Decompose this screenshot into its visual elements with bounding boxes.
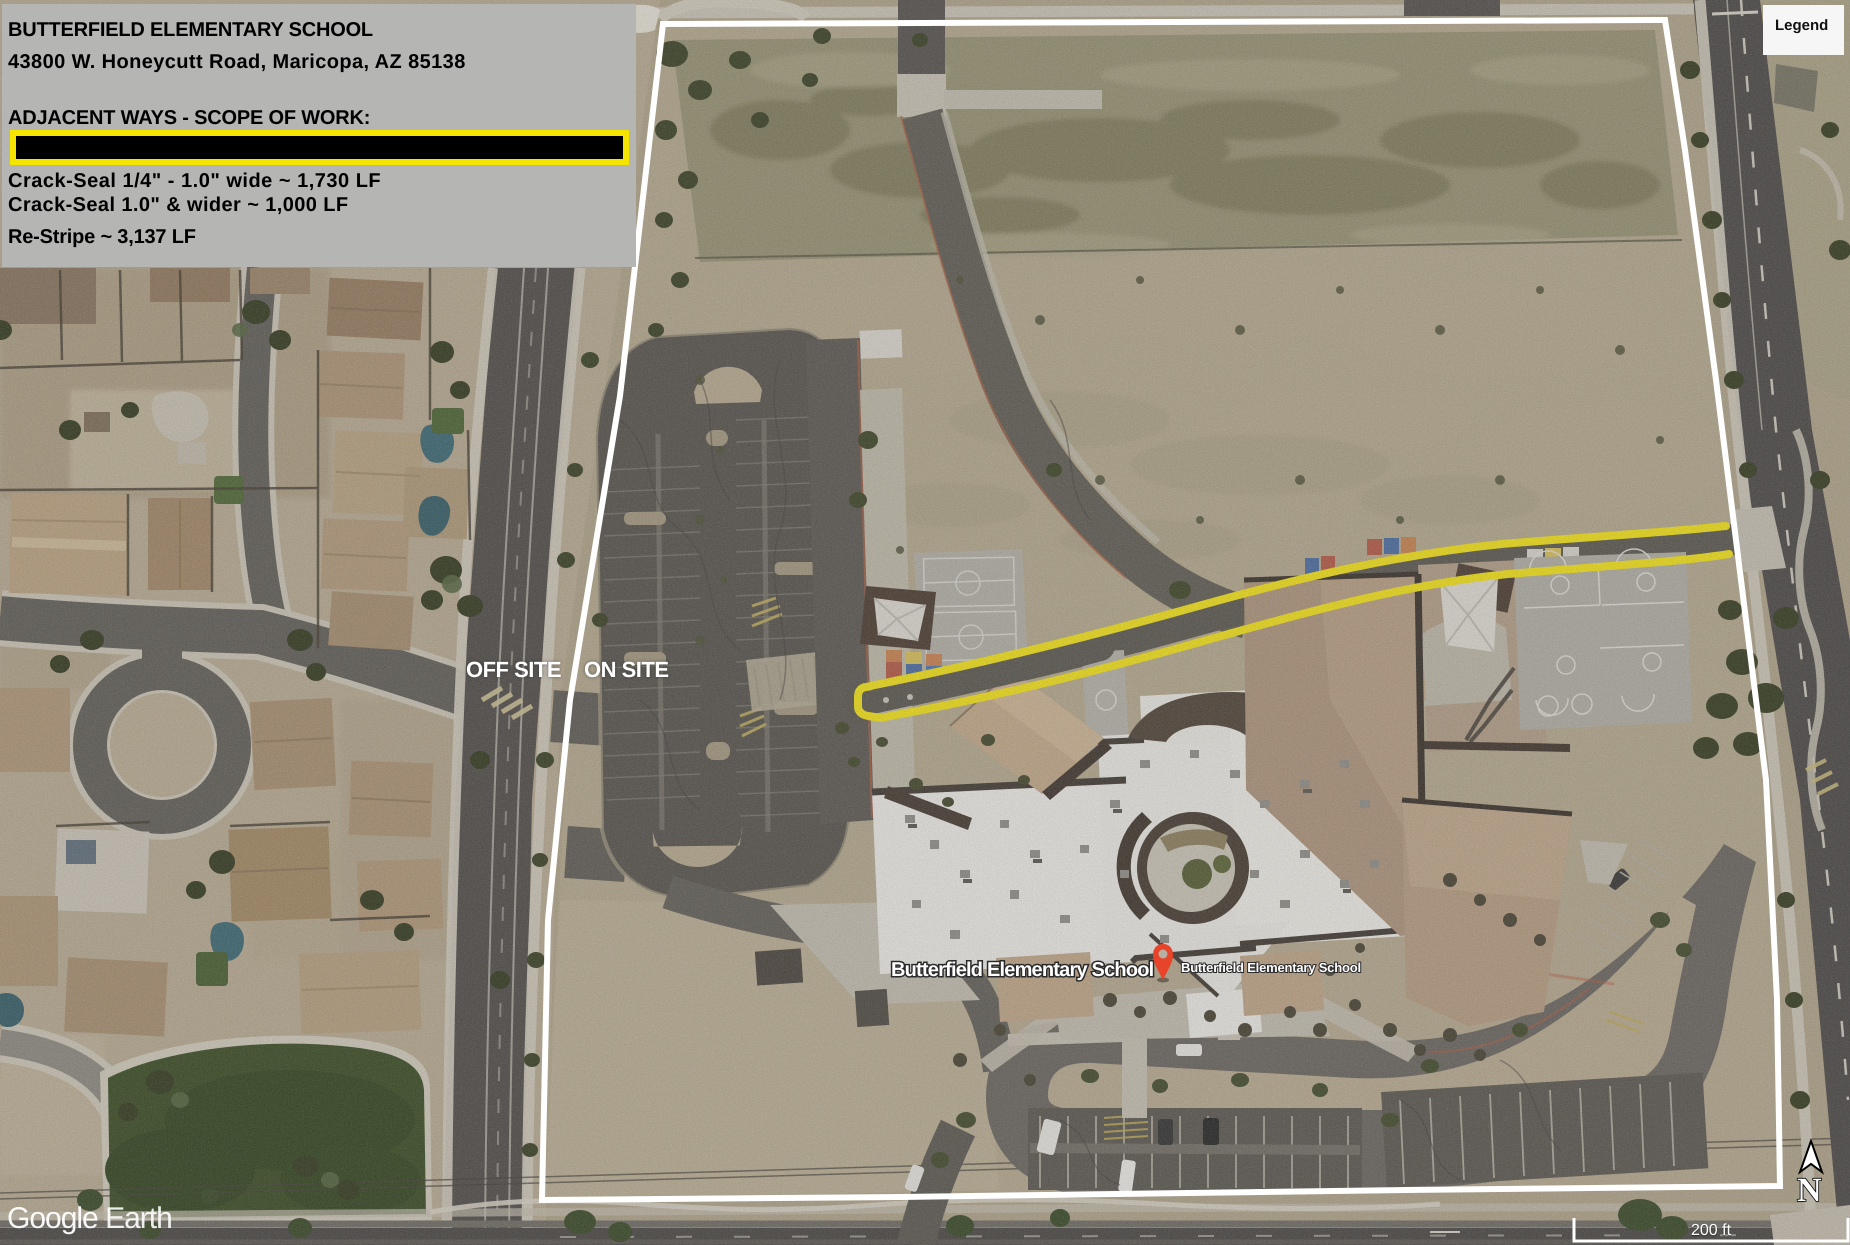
svg-text:N: N	[1797, 1172, 1822, 1209]
svg-text:Butterfield Elementary School: Butterfield Elementary School	[891, 959, 1154, 981]
svg-text:Butterfield Elementary School: Butterfield Elementary School	[1181, 960, 1361, 975]
